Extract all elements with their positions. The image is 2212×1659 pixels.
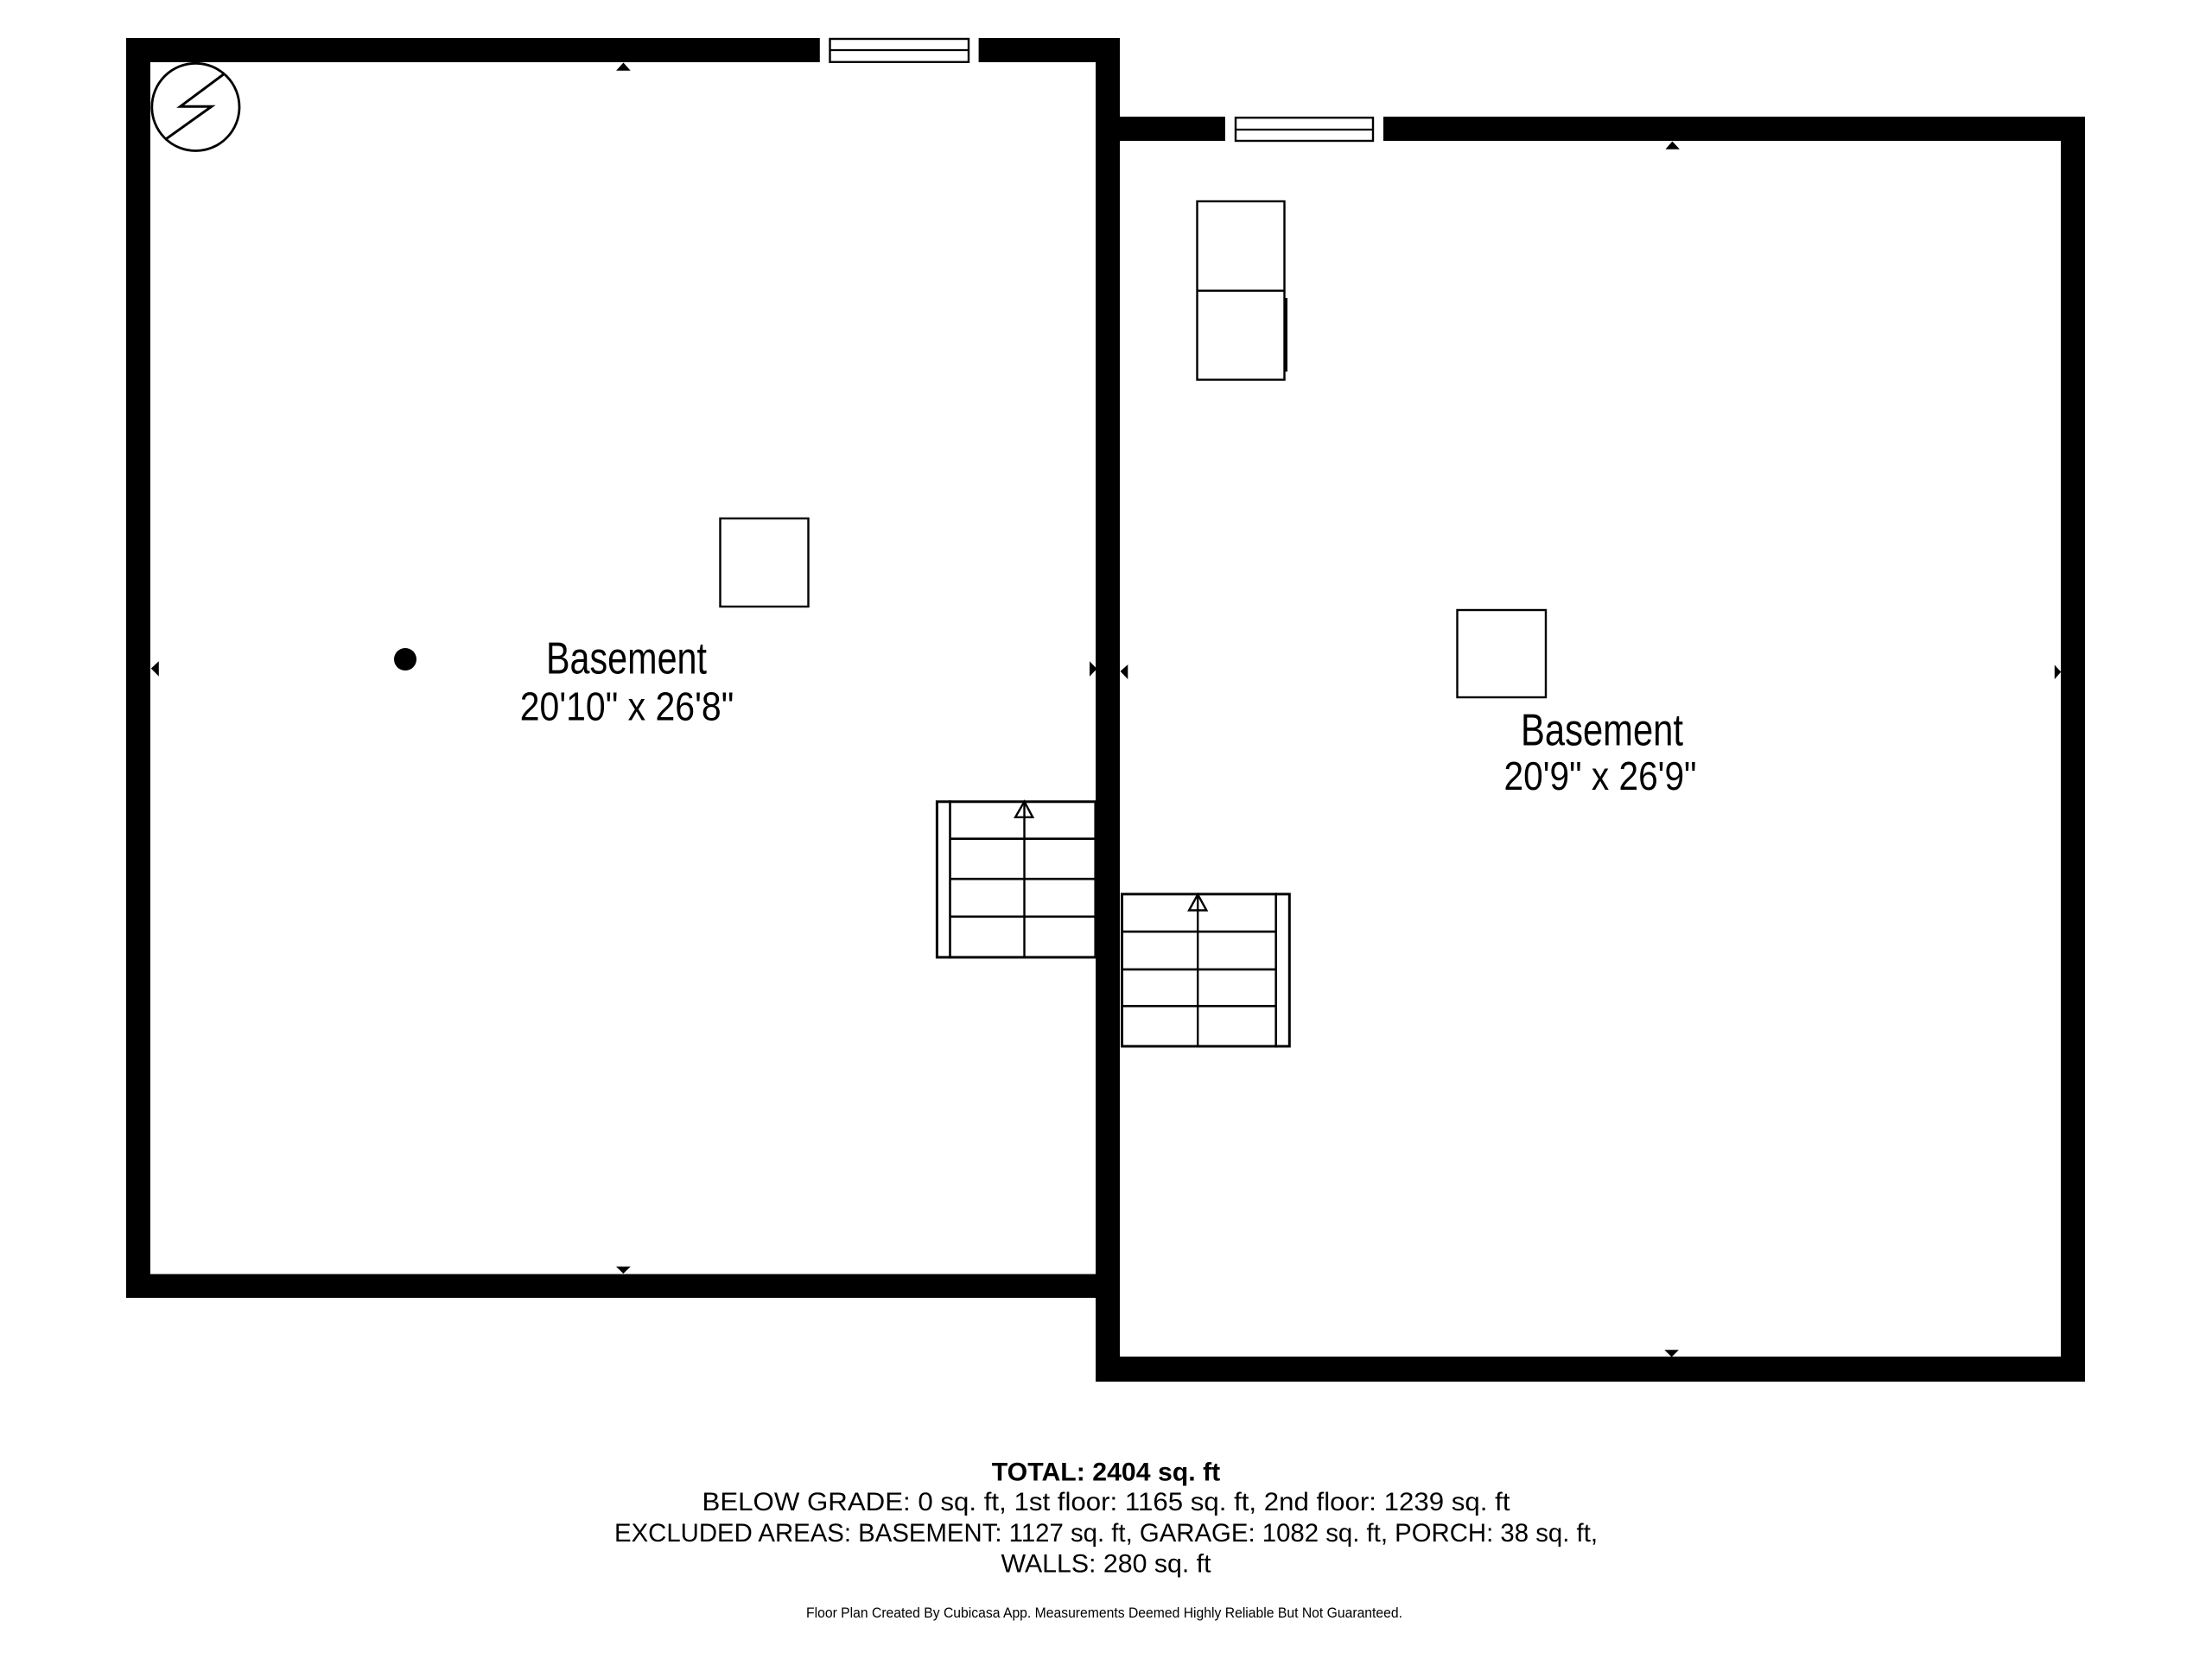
svg-text:WALLS: 280 sq. ft: WALLS: 280 sq. ft xyxy=(1001,1550,1212,1579)
svg-text:20'10" x 26'8": 20'10" x 26'8" xyxy=(520,684,734,729)
svg-text:Basement: Basement xyxy=(1521,705,1683,755)
svg-text:20'9" x 26'9": 20'9" x 26'9" xyxy=(1504,753,1697,798)
svg-text:TOTAL: 2404 sq. ft: TOTAL: 2404 sq. ft xyxy=(992,1459,1221,1487)
svg-text:BELOW GRADE: 0 sq. ft, 1st flo: BELOW GRADE: 0 sq. ft, 1st floor: 1165 s… xyxy=(702,1488,1511,1516)
svg-text:Basement: Basement xyxy=(546,634,707,684)
svg-text:EXCLUDED AREAS: BASEMENT: 1127: EXCLUDED AREAS: BASEMENT: 1127 sq. ft, G… xyxy=(614,1519,1598,1548)
svg-text:Floor Plan Created By Cubicasa: Floor Plan Created By Cubicasa App. Meas… xyxy=(806,1605,1402,1621)
